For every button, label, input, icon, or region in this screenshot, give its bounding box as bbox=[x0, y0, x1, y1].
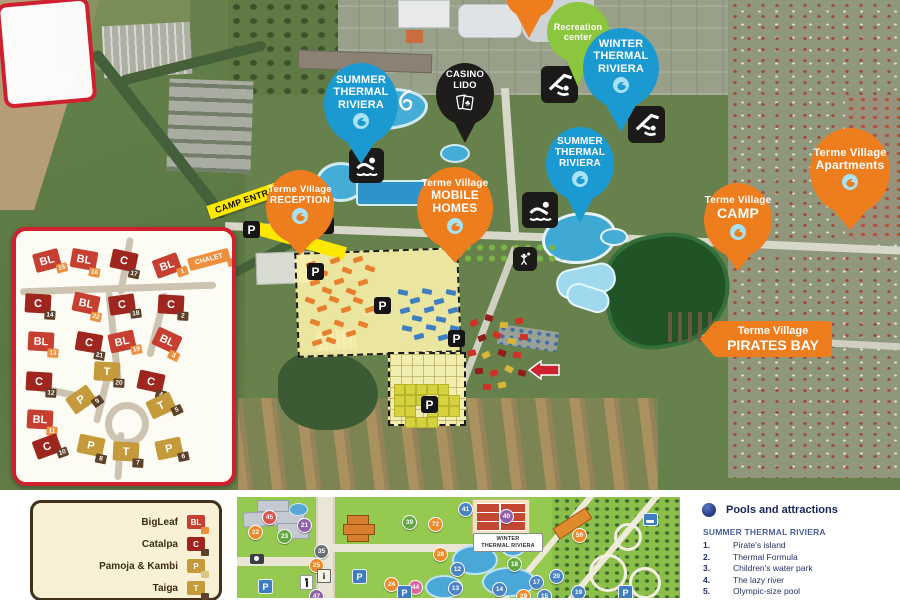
pin-terme-village-apartments: Terme VillageApartments bbox=[810, 128, 890, 214]
map-badge-15: 15 bbox=[537, 589, 552, 598]
red-arrow-icon bbox=[528, 360, 560, 380]
pin-summer-thermal-riviera-1-bubble: SUMMERTHERMALRIVIERA bbox=[324, 63, 398, 145]
inset-block-c2: C2 bbox=[158, 294, 185, 314]
inset-block-bl3: BL3 bbox=[151, 326, 183, 354]
map-badge-47: 47 bbox=[309, 589, 324, 598]
inset-block-p8: P8 bbox=[76, 434, 105, 458]
pin-terme-village-apartments-tail bbox=[834, 211, 866, 230]
winter-thermal-riviera-label: WINTER THERMAL RIVIERA bbox=[473, 533, 543, 552]
pin-terme-village-mobile-homes-label-2: HOMES bbox=[432, 202, 477, 215]
block-code: BL bbox=[158, 257, 176, 273]
block-number-tag: 7 bbox=[132, 458, 143, 468]
pin-summer-thermal-riviera-2-label-2: RIVIERA bbox=[559, 158, 601, 169]
camp-detail-block bbox=[500, 322, 508, 329]
attraction-number: 2. bbox=[703, 552, 733, 564]
tent-pitch-cell bbox=[449, 395, 460, 406]
attractions-header: Pools and attractions bbox=[702, 503, 898, 517]
pin-terme-village-mobile-homes: Terme VillageMOBILEHOMES bbox=[417, 167, 493, 249]
camp-detail-block bbox=[515, 317, 524, 324]
block-number-tag: 12 bbox=[45, 388, 56, 398]
orange-building bbox=[347, 515, 369, 542]
inset-block-bl16: BL16 bbox=[70, 248, 99, 271]
playing-cards-icon: ♣ bbox=[454, 93, 476, 118]
tent-pitch-cell bbox=[416, 417, 427, 428]
camp-loop bbox=[614, 523, 642, 551]
label-line: THERMAL RIVIERA bbox=[481, 543, 535, 549]
map-badge-22: 22 bbox=[248, 525, 263, 540]
attraction-name: Olympic-size pool bbox=[733, 586, 883, 598]
pin-terme-village-camp-label-1: CAMP bbox=[717, 206, 759, 222]
block-number-tag: 19 bbox=[130, 344, 143, 355]
pin-summer-thermal-riviera-2-label-0: SUMMER bbox=[557, 136, 603, 147]
tent-pitch-cell bbox=[394, 406, 405, 417]
inset-roundabout bbox=[105, 402, 149, 446]
block-number-tag: 20 bbox=[113, 378, 124, 388]
camp-detail-block bbox=[475, 368, 484, 375]
block-code: C bbox=[34, 297, 43, 309]
map-badge-17: 17 bbox=[529, 575, 544, 590]
pin-winter-thermal-riviera: WINTERTHERMALRIVIERA bbox=[583, 28, 659, 108]
block-code: C bbox=[117, 298, 127, 311]
tent-pitch-cell bbox=[427, 384, 438, 395]
camp-detail-block bbox=[469, 318, 479, 327]
pin-casino-lido: CASINOLIDO♣ bbox=[436, 63, 494, 125]
banner-arrow bbox=[700, 321, 715, 357]
pin-summer-thermal-riviera-1-label-0: SUMMER bbox=[336, 74, 386, 86]
legend-icon-c: C bbox=[187, 537, 205, 551]
camp-detail-block bbox=[497, 349, 507, 357]
attractions-list: 1.Pirate's island2.Thermal Formula3.Chil… bbox=[690, 540, 898, 600]
attractions-title: Pools and attractions bbox=[726, 504, 838, 516]
pin-summer-thermal-riviera-1-label-1: THERMAL bbox=[333, 86, 388, 98]
inset-block-bl13: BL13 bbox=[28, 331, 55, 351]
block-number-tag: 1 bbox=[176, 265, 189, 277]
pin-winter-thermal-riviera-label-0: WINTER bbox=[599, 38, 644, 50]
tent-pitch-cell bbox=[427, 417, 438, 428]
wave-icon bbox=[353, 113, 369, 134]
block-number-tag: 8 bbox=[95, 453, 108, 464]
block-number-tag: 3 bbox=[167, 349, 181, 362]
legend-row-p: Pamoja & KambiP bbox=[99, 559, 205, 573]
info-sign: i bbox=[317, 569, 331, 583]
tent-pitch-cell bbox=[405, 406, 416, 417]
legend-icon-t: T bbox=[187, 581, 205, 595]
pin-terme-village-apartments-bubble: Terme VillageApartments bbox=[810, 128, 890, 214]
tent-pitch-cell bbox=[449, 406, 460, 417]
camp-detail-block bbox=[477, 334, 487, 343]
pin-summer-thermal-riviera-2-tail bbox=[567, 198, 593, 223]
wave-icon bbox=[730, 224, 746, 245]
building bbox=[398, 0, 450, 28]
pin-terme-village-reception-label-1: RECEPTION bbox=[270, 195, 330, 206]
mini-parking-sign: P bbox=[397, 585, 412, 598]
inset-block-c21: C21 bbox=[75, 331, 104, 354]
pin-terme-village-reception: Terme VillageRECEPTION bbox=[266, 170, 334, 244]
pin-terme-village-mobile-homes-tail bbox=[440, 246, 470, 263]
block-code: BL bbox=[158, 332, 176, 349]
legend-tag bbox=[201, 527, 209, 534]
wave-icon bbox=[613, 77, 629, 98]
map-badge-35: 35 bbox=[314, 544, 329, 559]
map-badge-13: 13 bbox=[448, 581, 463, 596]
chalet-tag bbox=[227, 257, 236, 267]
legend-code: C bbox=[193, 540, 199, 549]
inset-block-p9: P9 bbox=[65, 384, 97, 414]
accommodation-legend: BigLeafBLCatalpaCPamoja & KambiPTaigaT bbox=[30, 500, 222, 600]
inset-block-bl15: BL15 bbox=[32, 248, 62, 273]
block-number-tag: 13 bbox=[47, 348, 58, 358]
tent-pitch-cell bbox=[438, 406, 449, 417]
pin-summer-thermal-riviera-2-bubble: SUMMERTHERMALRIVIERA bbox=[546, 127, 614, 201]
camp-loop bbox=[629, 567, 661, 598]
building bbox=[406, 30, 423, 43]
block-code: BL bbox=[76, 252, 93, 266]
block-code: C bbox=[84, 336, 94, 349]
legend-tag bbox=[201, 571, 209, 578]
attraction-name: The lazy river bbox=[733, 575, 883, 587]
pin-terme-village-reception-label-0: Terme Village bbox=[268, 185, 332, 196]
pin-terme-village-reception-tail bbox=[287, 241, 313, 255]
legend-label: Taiga bbox=[153, 583, 178, 594]
pin-summer-thermal-riviera-2: SUMMERTHERMALRIVIERA bbox=[546, 127, 614, 201]
attraction-item-2: 2.Thermal Formula bbox=[703, 552, 898, 564]
camp-detail-block bbox=[481, 351, 491, 360]
mini-parking-sign: P bbox=[618, 585, 633, 598]
legend-row-c: CatalpaC bbox=[142, 537, 205, 551]
pin-summer-thermal-riviera-2-label-1: THERMAL bbox=[555, 147, 605, 158]
attraction-number: 4. bbox=[703, 575, 733, 587]
inset-block-c18: C18 bbox=[108, 293, 136, 315]
map-badge-29: 29 bbox=[516, 589, 531, 598]
attractions-panel: Pools and attractions SUMMER THERMAL RIV… bbox=[690, 497, 898, 600]
block-code: T bbox=[155, 399, 166, 413]
block-number-tag: 15 bbox=[55, 262, 68, 274]
pin-summer-thermal-riviera-1-tail bbox=[347, 142, 375, 164]
pin-terme-village-camp-bubble: Terme VillageCAMP bbox=[704, 183, 772, 257]
inset-block-p6: P6 bbox=[154, 437, 183, 461]
parking-icon: P bbox=[421, 396, 438, 413]
inset-block-bl22: BL22 bbox=[71, 292, 100, 316]
map-badge-50: 50 bbox=[572, 528, 587, 543]
camp-detail-block bbox=[483, 384, 491, 390]
parking-icon: P bbox=[374, 297, 391, 314]
attraction-name: Pirate's island bbox=[733, 540, 883, 552]
block-code: BL bbox=[114, 334, 131, 349]
map-badge-45: 45 bbox=[262, 510, 277, 525]
block-number-tag: 22 bbox=[90, 311, 103, 322]
attraction-item-4: 4.The lazy river bbox=[703, 575, 898, 587]
map-badge-28: 28 bbox=[433, 547, 448, 562]
attraction-number: 3. bbox=[703, 563, 733, 575]
camp-detail-block bbox=[498, 381, 507, 388]
parking-icon: P bbox=[448, 330, 465, 347]
block-number-tag: 18 bbox=[130, 308, 142, 318]
pin-summer-thermal-riviera-1: SUMMERTHERMALRIVIERA bbox=[324, 63, 398, 145]
block-number-tag: 17 bbox=[128, 268, 141, 279]
pin-terme-village-camp-tail bbox=[725, 254, 751, 271]
map-badge-12: 12 bbox=[450, 562, 465, 577]
map-badge-21: 21 bbox=[297, 518, 312, 533]
camp-detail-block bbox=[517, 369, 526, 377]
block-code: C bbox=[35, 375, 44, 387]
map-badge-41: 41 bbox=[458, 502, 473, 517]
pin-winter-thermal-riviera-label-1: THERMAL bbox=[593, 50, 648, 62]
inset-block-c4: C4 bbox=[136, 370, 165, 394]
pin-winter-thermal-riviera-label-2: RIVIERA bbox=[598, 63, 644, 75]
pin-casino-lido-bubble: CASINOLIDO♣ bbox=[436, 63, 494, 125]
pin-terme-village-pirates-bay: Terme Village PIRATES BAY bbox=[714, 321, 832, 357]
attraction-name: Thermal Formula bbox=[733, 552, 883, 564]
block-code: BL bbox=[32, 413, 47, 426]
pin-terme-village-reception-bubble: Terme VillageRECEPTION bbox=[266, 170, 334, 244]
legend-row-t: TaigaT bbox=[153, 581, 205, 595]
block-code: P bbox=[86, 439, 96, 452]
tent-pitch-cell bbox=[405, 417, 416, 428]
map-badge-72: 72 bbox=[428, 517, 443, 532]
wave-icon bbox=[842, 174, 858, 195]
pin-terme-village-mobile-homes-bubble: Terme VillageMOBILEHOMES bbox=[417, 167, 493, 249]
banner-line1: Terme Village bbox=[738, 325, 809, 338]
slide-glyph-icon bbox=[395, 89, 417, 117]
attraction-number: 1. bbox=[703, 540, 733, 552]
wave-icon bbox=[292, 208, 308, 229]
legend-code: BL bbox=[191, 518, 202, 527]
legend-code: T bbox=[194, 584, 199, 593]
inset-block-c14: C14 bbox=[25, 293, 52, 313]
legend-label: Pamoja & Kambi bbox=[99, 561, 178, 572]
pin-casino-lido-tail bbox=[454, 122, 476, 143]
legend-icon-p: P bbox=[187, 559, 205, 573]
inset-block-bl1: BL1 bbox=[152, 252, 183, 279]
forest-patch bbox=[278, 352, 378, 430]
block-number-tag: 14 bbox=[44, 310, 55, 320]
block-code: C bbox=[167, 298, 176, 310]
mini-parking-sign: P bbox=[258, 579, 273, 594]
inset-block-bl19: BL19 bbox=[107, 330, 136, 354]
illustrated-mini-map: WINTER THERMAL RIVIERA 45222123352547397… bbox=[237, 497, 680, 598]
map-badge-39: 39 bbox=[402, 515, 417, 530]
camp-detail-block bbox=[520, 334, 528, 340]
map-badge-18: 18 bbox=[507, 557, 522, 572]
block-code: BL bbox=[38, 253, 55, 268]
tent-pitch-cell bbox=[405, 384, 416, 395]
attraction-item-5: 5.Olympic-size pool bbox=[703, 586, 898, 598]
block-code: BL bbox=[33, 335, 48, 348]
pin-summer-thermal-riviera-1-label-2: RIVIERA bbox=[338, 99, 384, 111]
legend-row-bl: BigLeafBL bbox=[141, 515, 205, 529]
block-code: T bbox=[103, 365, 110, 377]
block-code: P bbox=[164, 442, 174, 455]
camp-inset-map: BL15BL16C17BL1C14BL22C18C2BL13C21BL19BL3… bbox=[12, 227, 236, 486]
inset-block-c10: C10 bbox=[32, 433, 63, 460]
pin-casino-lido-label-0: CASINO bbox=[446, 70, 484, 81]
legend-icon-bl: BL bbox=[187, 515, 205, 529]
block-code: C bbox=[119, 254, 129, 267]
resort-brochure-map: PPPPPP RecreationcenterWINTERTHERMALRIVI… bbox=[0, 0, 900, 600]
attraction-item-1: 1.Pirate's island bbox=[703, 540, 898, 552]
wave-icon bbox=[572, 171, 588, 192]
attraction-item-3: 3.Children's water park bbox=[703, 563, 898, 575]
pin-terme-village-apartments-label-1: Apartments bbox=[816, 159, 885, 172]
aerial-map: PPPPPP RecreationcenterWINTERTHERMALRIVI… bbox=[0, 0, 900, 490]
map-badge-14: 14 bbox=[492, 582, 507, 597]
block-code: C bbox=[146, 375, 156, 388]
camp-detail-block bbox=[513, 352, 522, 359]
pond bbox=[289, 503, 308, 516]
inset-chalet-label: CHALET bbox=[187, 248, 231, 271]
pin-winter-thermal-riviera-bubble: WINTERTHERMALRIVIERA bbox=[583, 28, 659, 108]
banner-line2: PIRATES BAY bbox=[727, 337, 819, 353]
map-badge-40: 40 bbox=[499, 509, 514, 524]
legend-tag bbox=[201, 593, 209, 600]
tent-pitch-cell bbox=[394, 384, 405, 395]
cut-pin-top-tail bbox=[513, 8, 545, 38]
inset-block-c12: C12 bbox=[26, 371, 53, 391]
map-badge-20: 20 bbox=[549, 569, 564, 584]
parking-icon: P bbox=[243, 221, 260, 238]
inset-block-bl11: BL11 bbox=[27, 409, 54, 429]
inset-block-t7: T7 bbox=[113, 441, 140, 461]
block-number-tag: 21 bbox=[93, 350, 105, 361]
attractions-section: SUMMER THERMAL RIVIERA bbox=[703, 527, 898, 537]
attraction-number: 5. bbox=[703, 586, 733, 598]
parking-icon: P bbox=[307, 263, 324, 280]
inset-block-t5: T5 bbox=[145, 391, 177, 419]
attraction-name: Children's water park bbox=[733, 563, 883, 575]
block-number-tag: 6 bbox=[177, 451, 190, 462]
tent-pitch-cell bbox=[438, 395, 449, 406]
block-number-tag: 10 bbox=[56, 446, 69, 458]
pin-terme-village-camp: Terme VillageCAMP bbox=[704, 183, 772, 257]
legend-label: BigLeaf bbox=[141, 517, 178, 528]
mini-parking-sign: P bbox=[352, 569, 367, 584]
pin-casino-lido-label-1: LIDO bbox=[453, 81, 477, 92]
block-code: BL bbox=[78, 296, 95, 311]
block-number-tag: 2 bbox=[177, 311, 188, 321]
volleyball-icon bbox=[513, 247, 537, 271]
road bbox=[501, 88, 519, 236]
tent-pitch-cell bbox=[394, 395, 405, 406]
wave-icon bbox=[447, 218, 463, 239]
camp-detail-block bbox=[504, 364, 514, 373]
webcam-sign bbox=[250, 554, 264, 564]
pin-terme-village-mobile-homes-label-1: MOBILE bbox=[431, 189, 479, 202]
tent-pitch-cell bbox=[438, 384, 449, 395]
pool bbox=[440, 144, 470, 163]
map-badge-23: 23 bbox=[277, 529, 292, 544]
block-code: P bbox=[75, 392, 88, 406]
walking-sign bbox=[300, 575, 313, 590]
block-number-tag: 16 bbox=[88, 267, 100, 278]
legend-label: Catalpa bbox=[142, 539, 178, 550]
path bbox=[237, 557, 317, 566]
path bbox=[331, 544, 476, 552]
inset-block-t20: T20 bbox=[94, 361, 121, 381]
pools-icon bbox=[702, 503, 716, 517]
legend-tag bbox=[201, 549, 209, 556]
accommodation-sign bbox=[643, 513, 658, 526]
inset-block-c17: C17 bbox=[109, 249, 138, 273]
legend-code: P bbox=[193, 562, 198, 571]
tent-pitch-cell bbox=[405, 395, 416, 406]
block-code: T bbox=[122, 445, 129, 457]
highlighted-camp-area bbox=[0, 0, 97, 109]
map-badge-19: 19 bbox=[571, 585, 586, 598]
block-code: C bbox=[41, 440, 53, 454]
block-number-tag: 5 bbox=[170, 404, 184, 417]
tent-pitch-cell bbox=[416, 384, 427, 395]
camp-detail-block bbox=[489, 369, 499, 377]
